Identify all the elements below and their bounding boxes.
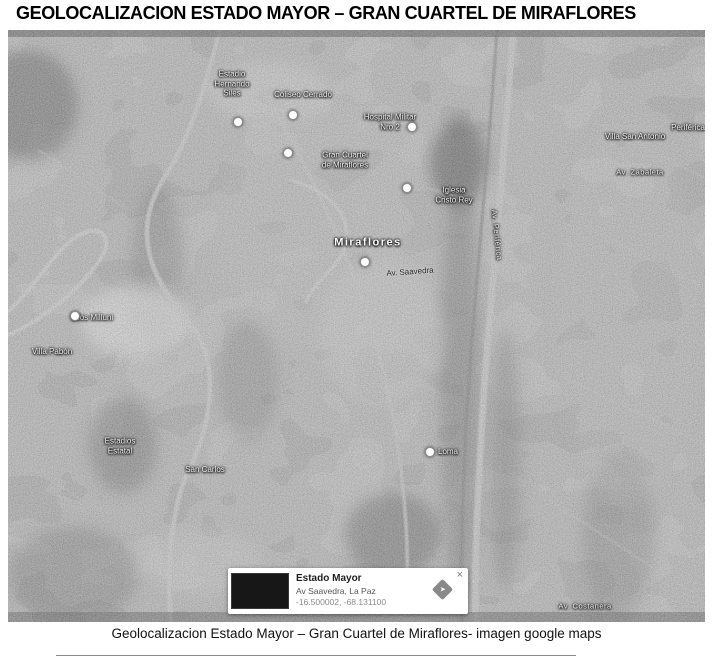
map-label: Loma (438, 447, 458, 457)
map-label: Coliseo Cerrado (274, 90, 332, 100)
map-label: Iglesia Cristo Rey (435, 185, 472, 204)
place-title: Estado Mayor (296, 573, 362, 584)
close-icon[interactable]: × (457, 569, 463, 582)
map-overlays: Estadio Hernando SilesColiseo CerradoHos… (8, 30, 705, 622)
poi-marker[interactable] (70, 311, 80, 321)
page-title: GEOLOCALIZACION ESTADO MAYOR – GRAN CUAR… (16, 3, 636, 24)
map-label: Estadios Estatal (105, 436, 136, 455)
directions-icon[interactable]: ➤ (432, 579, 453, 600)
arrow-glyph: ➤ (440, 586, 446, 593)
map-label: Estadio Hernando Siles (214, 70, 249, 99)
poi-marker[interactable] (425, 447, 435, 457)
poi-marker[interactable] (283, 148, 293, 158)
place-coordinates: -16.500002, -68.131100 (296, 597, 386, 607)
map-label: Miraflores (334, 236, 402, 249)
place-photo-thumbnail[interactable] (231, 573, 289, 609)
map-label: Villa San Antonio (605, 132, 665, 142)
poi-marker[interactable] (360, 257, 370, 267)
map-label: Av. Zabaleta (616, 168, 663, 177)
map-label: Gran Cuartel de Miraflores (322, 150, 368, 169)
map-label: Periférica (671, 123, 705, 133)
map-label: Av. Costanera (558, 602, 611, 611)
image-caption: Geolocalizacion Estado Mayor – Gran Cuar… (0, 626, 713, 641)
poi-marker[interactable] (233, 117, 243, 127)
place-address: Av Saavedra, La Paz (296, 586, 376, 596)
map-label: Villa Pabón (32, 347, 72, 357)
poi-marker[interactable] (407, 122, 417, 132)
divider (56, 655, 576, 656)
satellite-map[interactable]: Estadio Hernando SilesColiseo CerradoHos… (8, 30, 705, 622)
map-label: Av. Periférica (490, 209, 504, 261)
poi-marker[interactable] (402, 183, 412, 193)
poi-marker[interactable] (288, 110, 298, 120)
map-label: San Carlos (185, 465, 225, 475)
map-info-card: Estado Mayor Av Saavedra, La Paz -16.500… (228, 568, 468, 614)
map-label: Av. Saavedra (386, 266, 434, 279)
